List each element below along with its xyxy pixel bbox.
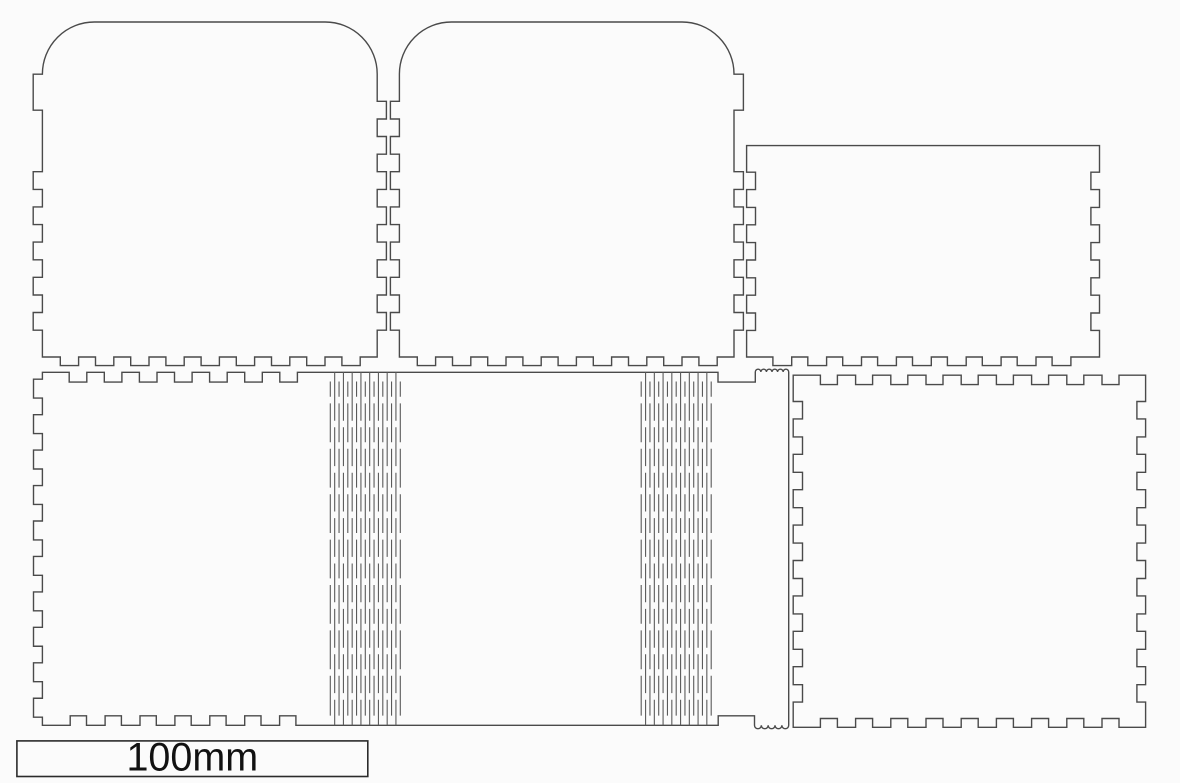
svg-text:100mm: 100mm (126, 736, 258, 780)
